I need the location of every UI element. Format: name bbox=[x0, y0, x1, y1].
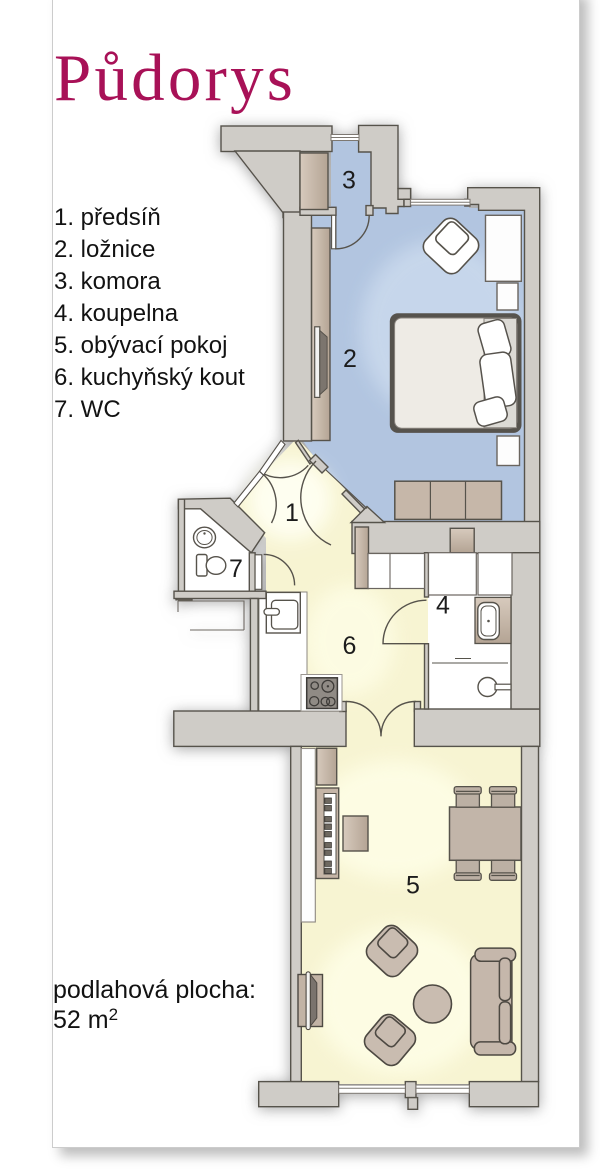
svg-text:3: 3 bbox=[342, 167, 356, 195]
svg-text:2. ložnice: 2. ložnice bbox=[54, 236, 155, 263]
svg-text:3. komora: 3. komora bbox=[54, 268, 161, 295]
svg-text:7: 7 bbox=[229, 555, 243, 583]
svg-text:4: 4 bbox=[436, 592, 450, 620]
svg-text:2: 2 bbox=[343, 345, 357, 373]
svg-text:6. kuchyňský kout: 6. kuchyňský kout bbox=[54, 364, 245, 391]
svg-text:Půdorys: Půdorys bbox=[54, 41, 296, 115]
svg-text:podlahová plocha:: podlahová plocha: bbox=[53, 976, 256, 1004]
svg-text:1. předsíň: 1. předsíň bbox=[54, 204, 161, 231]
svg-text:6: 6 bbox=[343, 632, 357, 660]
svg-text:7. WC: 7. WC bbox=[54, 396, 121, 423]
svg-text:5. obývací pokoj: 5. obývací pokoj bbox=[54, 332, 227, 359]
svg-text:4. koupelna: 4. koupelna bbox=[54, 300, 179, 327]
svg-text:1: 1 bbox=[285, 499, 299, 527]
svg-text:52 m2: 52 m2 bbox=[53, 1005, 118, 1034]
svg-text:5: 5 bbox=[406, 872, 420, 900]
